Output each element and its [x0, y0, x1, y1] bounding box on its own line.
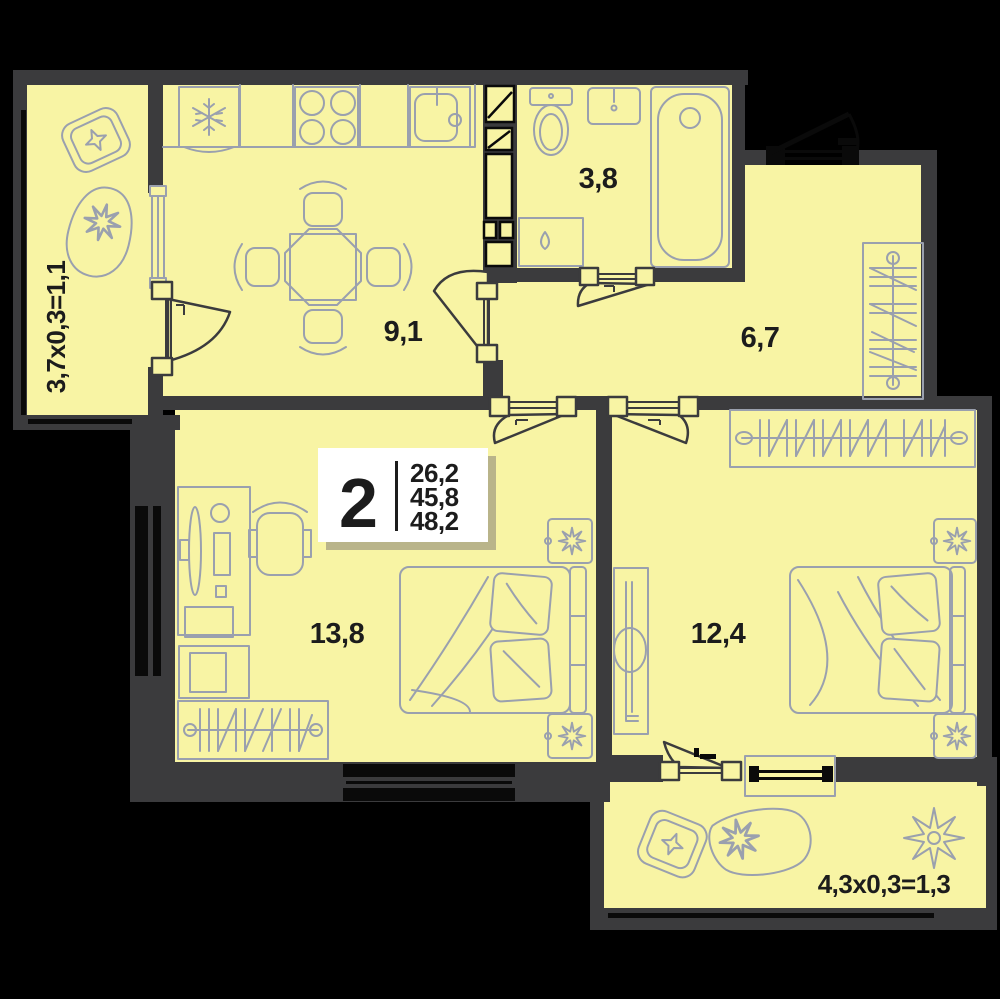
balcony-bottom-glazing-icon [608, 913, 934, 918]
label-bathroom: 3,8 [579, 163, 618, 195]
window-bedroom-right-balcony [745, 756, 835, 796]
duct-icon [500, 222, 513, 238]
label-bedroom-left: 13,8 [310, 618, 365, 650]
label-bedroom-right: 12,4 [691, 618, 746, 650]
floorplan-stage: 3,7x0,3=1,1 9,1 3,8 6,7 13,8 12,4 4,3x0,… [0, 0, 1000, 999]
room-hallway [483, 282, 921, 396]
duct-shaft [484, 86, 514, 266]
duct-icon [486, 242, 512, 266]
floorplan-svg: 3,7x0,3=1,1 9,1 3,8 6,7 13,8 12,4 4,3x0,… [0, 0, 1000, 999]
duct-icon [486, 154, 512, 218]
door-handle-icon [838, 138, 858, 145]
label-kitchen: 9,1 [384, 316, 423, 348]
badge-divider [395, 461, 398, 531]
badge-room-count: 2 [339, 464, 377, 542]
label-balcony-left: 3,7x0,3=1,1 [41, 261, 71, 394]
area-badge: 2 26,2 45,8 48,2 [318, 448, 496, 550]
bedroom-left-side-window-icon [135, 506, 148, 676]
bedroom-left-bottom-window-icon [343, 764, 515, 777]
label-hallway: 6,7 [741, 322, 780, 354]
label-balcony-bottom: 4,3x0,3=1,3 [818, 869, 951, 899]
badge-area-total: 48,2 [410, 506, 459, 536]
window-balcony-kitchen [150, 186, 166, 288]
balcony-left-bottom-glazing-icon [28, 419, 132, 424]
balcony-left-glazing-icon [21, 110, 26, 415]
duct-icon [484, 222, 496, 238]
